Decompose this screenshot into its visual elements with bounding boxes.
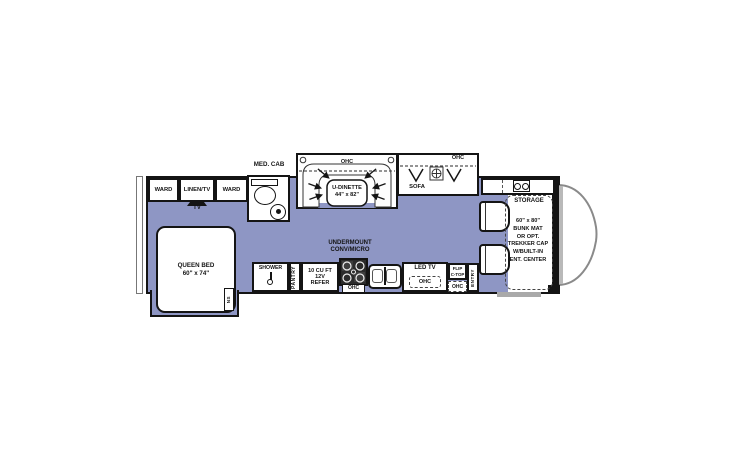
dinette-ohc-label: OHC	[330, 159, 364, 166]
front-hood	[558, 181, 600, 289]
storage-label: STORAGE	[505, 198, 553, 205]
sink-bowl-right	[386, 269, 397, 283]
nightstand-label: NS	[226, 296, 231, 303]
pantry: PANTRY	[289, 262, 301, 292]
driver-seat-back	[485, 203, 486, 230]
cab-cabinet-divider	[502, 180, 503, 193]
entry-step	[497, 292, 541, 297]
bath-faucet-icon	[276, 209, 281, 214]
sink-faucet-icon	[384, 267, 386, 285]
rear-bumper	[136, 176, 143, 294]
rv-floorplan: WARD LINEN/TV WARD TV MED. CAB QUEEN BED…	[0, 0, 731, 469]
ward-cabinet-right: WARD	[215, 178, 248, 202]
toilet-icon	[251, 179, 278, 186]
sofa-ohc-label: OHC	[441, 155, 475, 162]
sofa-label: SOFA	[402, 184, 432, 191]
shower-label: SHOWER	[252, 265, 289, 271]
bunk-label: 60" x 80" BUNK MAT OR OPT. TREKKER CAP W…	[498, 218, 558, 265]
pantry-label: PANTRY	[292, 266, 298, 289]
radio-knob-left	[514, 183, 521, 190]
led-tv-ohc-label: OHC	[409, 276, 441, 288]
nightstand: NS	[224, 288, 234, 311]
dinette-table-label: U-DINETTE 44" x 82"	[323, 185, 371, 198]
stove-ohc-label: OHC	[342, 284, 365, 293]
stove-icon	[339, 258, 368, 286]
entry-label: ENTRY	[470, 269, 475, 287]
shower-drain-icon	[267, 279, 273, 285]
radio-knob-right	[522, 183, 529, 190]
linen-tv-cabinet: LINEN/TV	[179, 178, 215, 202]
undermount-conv-micro-label: UNDERMOUNT CONV/MICRO	[305, 240, 395, 254]
entry-door: ENTRY	[467, 263, 479, 292]
led-tv-label: LED TV	[404, 265, 446, 272]
sink-bowl-left	[372, 269, 383, 283]
toilet-bowl-icon	[254, 186, 276, 205]
med-cab-label: MED. CAB	[243, 161, 295, 168]
radio-icon	[513, 180, 530, 192]
flip-ctop: FLIP C-TOP	[448, 263, 467, 280]
flip-ctop-ohc-label: OHC	[448, 281, 467, 292]
ward-cabinet-left: WARD	[148, 178, 179, 202]
passenger-seat-back	[485, 246, 486, 273]
tv-label: TV	[185, 205, 209, 212]
refrigerator: 10 CU FT 12V REFER	[301, 262, 339, 292]
